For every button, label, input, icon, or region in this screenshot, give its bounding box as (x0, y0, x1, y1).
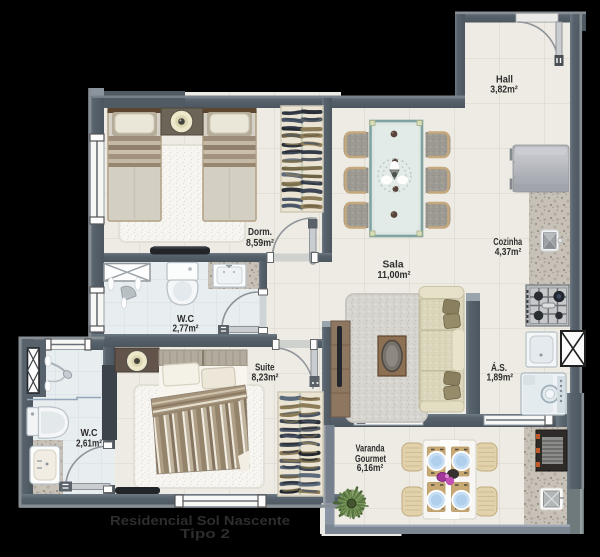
svg-text:Tipo 2: Tipo 2 (180, 526, 230, 541)
svg-text:2,77m²: 2,77m² (173, 323, 199, 335)
svg-text:8,59m²: 8,59m² (246, 237, 274, 249)
svg-text:1,89m²: 1,89m² (487, 372, 514, 384)
svg-text:11,00m²: 11,00m² (378, 269, 411, 281)
svg-text:4,37m²: 4,37m² (495, 246, 522, 258)
svg-text:6,16m²: 6,16m² (357, 462, 384, 474)
svg-text:8,23m²: 8,23m² (252, 372, 279, 384)
svg-text:2,61m²: 2,61m² (76, 438, 102, 450)
svg-text:3,82m²: 3,82m² (490, 84, 518, 96)
